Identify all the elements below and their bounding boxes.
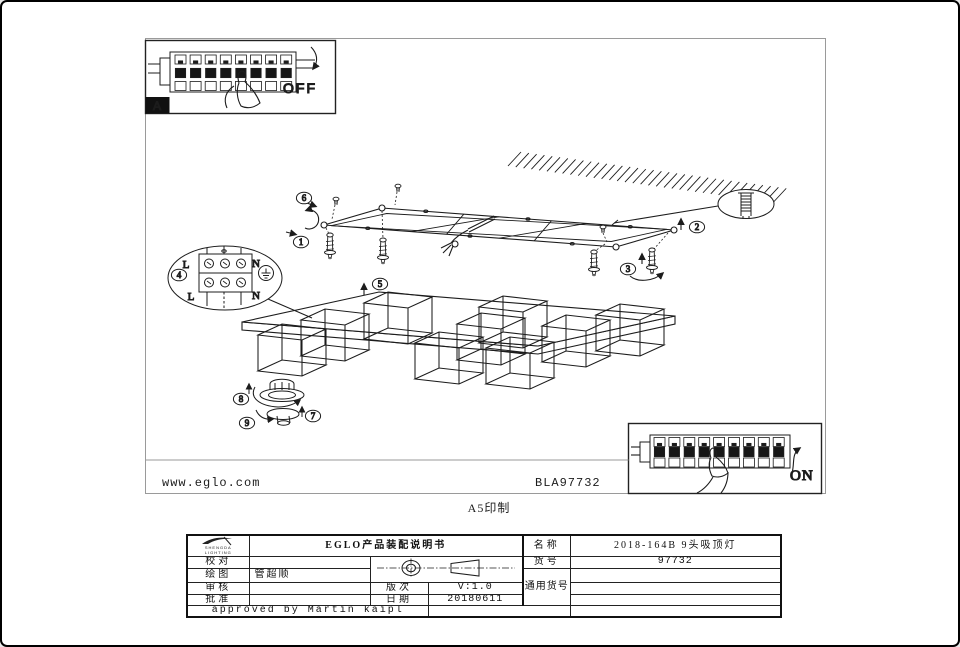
breaker-strip-on	[654, 438, 784, 468]
check-value	[249, 556, 370, 568]
terminal-n-top: N	[252, 258, 260, 270]
bulb-and-socket	[249, 379, 304, 425]
instruction-arrows	[286, 203, 681, 295]
on-label: ON	[790, 468, 814, 484]
projection-symbol-cell	[370, 556, 523, 582]
callout-4: 4	[171, 269, 186, 281]
common-item-value-2	[570, 582, 781, 594]
doc-title: EGLO产品装配说明书	[249, 535, 523, 556]
badge-a-label: A	[153, 99, 161, 113]
callout-3: 3	[620, 263, 635, 275]
review-value	[249, 582, 370, 594]
instruction-sheet-page: OFF A ON	[0, 0, 960, 647]
anchor-detail-balloon	[612, 190, 774, 226]
inset-power-off: OFF A	[146, 41, 336, 114]
callout-5: 5	[372, 278, 387, 290]
terminal-n-bottom: N	[252, 290, 260, 302]
common-item-value-3	[570, 594, 781, 605]
draw-label: 绘图	[187, 568, 249, 582]
check-label: 校对	[187, 556, 249, 568]
draw-value: 管超顺	[249, 568, 370, 582]
item-value: 97732	[570, 556, 781, 568]
svg-text:6: 6	[302, 193, 307, 203]
logo-cell: SHENGDA LIGHTING	[187, 535, 249, 556]
svg-text:9: 9	[245, 418, 250, 428]
title-block: SHENGDA LIGHTING EGLO产品装配说明书 名称 2018-164…	[186, 534, 782, 618]
callout-6: 6	[296, 192, 311, 204]
svg-text:7: 7	[311, 411, 316, 421]
svg-text:4: 4	[177, 270, 182, 280]
review-label: 审核	[187, 582, 249, 594]
svg-text:1: 1	[299, 237, 304, 247]
svg-text:5: 5	[378, 279, 383, 289]
mounting-screws	[333, 184, 606, 233]
off-label: OFF	[283, 80, 317, 96]
version-label: 版次	[370, 582, 428, 594]
empty-cell	[570, 605, 781, 617]
wall-anchors	[325, 233, 658, 276]
svg-text:2: 2	[695, 222, 700, 232]
svg-text:3: 3	[626, 264, 631, 274]
terminal-detail: L N L N	[168, 246, 312, 318]
date-value: 20180611	[428, 594, 523, 605]
common-item-value-1	[570, 568, 781, 582]
rotate-arrow-icon	[305, 210, 319, 229]
socket-icon	[267, 409, 299, 426]
inset-power-on: ON	[629, 424, 822, 494]
terminal-l-bottom: L	[188, 291, 195, 303]
product-code-text: BLA97732	[535, 476, 601, 490]
svg-text:8: 8	[239, 394, 244, 404]
name-label: 名称	[523, 535, 570, 556]
callout-8: 8	[233, 393, 248, 405]
print-note: A5印制	[468, 501, 511, 515]
rotate-arrow-icon	[630, 273, 663, 280]
projection-symbol-icon	[371, 557, 521, 579]
callout-9: 9	[239, 417, 254, 429]
mounting-bar	[321, 205, 677, 256]
bulb-icon	[260, 379, 304, 401]
approved-note: approved by Martin kaipl	[187, 605, 428, 617]
approve-label: 批准	[187, 594, 249, 605]
brand-logo-text: SHENGDA LIGHTING	[199, 546, 237, 556]
terminal-l-top: L	[183, 259, 190, 271]
callout-7: 7	[305, 410, 320, 422]
item-label: 货号	[523, 556, 570, 568]
website-text: www.eglo.com	[162, 476, 260, 490]
earth-ground-icon	[259, 266, 274, 281]
empty-cell	[428, 605, 570, 617]
callout-2: 2	[689, 221, 704, 233]
name-value: 2018-164B 9头吸顶灯	[570, 535, 781, 556]
date-label: 日期	[370, 594, 428, 605]
version-value: V:1.0	[428, 582, 523, 594]
common-item-label: 通用货号	[523, 568, 570, 605]
approve-value	[249, 594, 370, 605]
callout-1: 1	[293, 236, 308, 248]
